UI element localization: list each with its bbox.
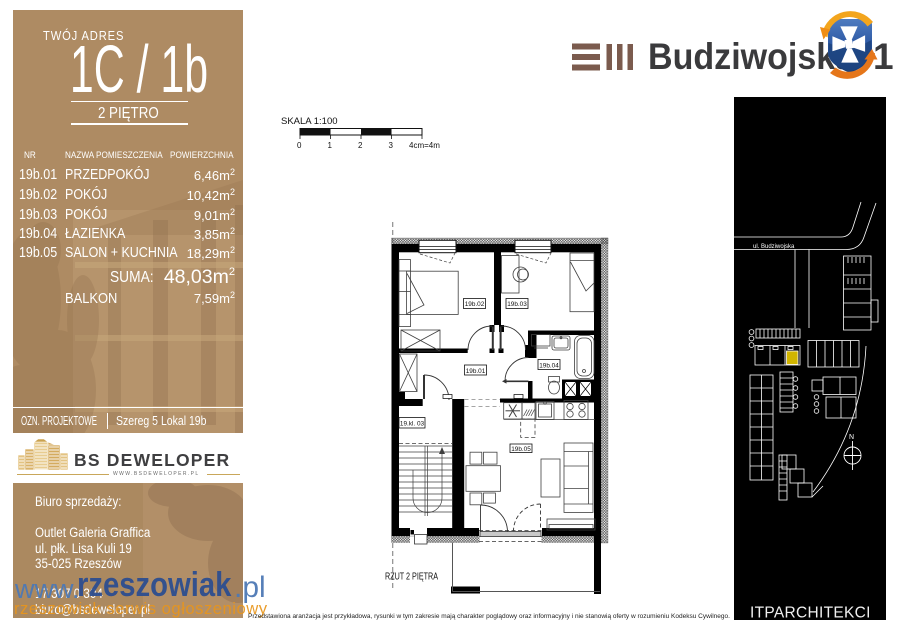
svg-text:19b.05: 19b.05 xyxy=(511,446,531,453)
svg-text:19b.01: 19b.01 xyxy=(466,368,486,375)
svg-text:SKALA 1:100: SKALA 1:100 xyxy=(281,116,338,127)
svg-text:19b.03: 19b.03 xyxy=(507,301,527,308)
svg-text:RZUT 2 PIĘTRA: RZUT 2 PIĘTRA xyxy=(385,572,438,583)
svg-text:0: 0 xyxy=(297,141,302,150)
svg-text:19b.04: 19b.04 xyxy=(539,362,559,369)
svg-text:2: 2 xyxy=(358,141,363,150)
svg-text:4cm=4m: 4cm=4m xyxy=(409,141,440,150)
svg-text:19b.02: 19b.02 xyxy=(465,301,485,308)
svg-text:3: 3 xyxy=(389,141,394,150)
svg-text:19.kl. 03: 19.kl. 03 xyxy=(400,421,425,428)
svg-text:N: N xyxy=(849,434,854,441)
svg-text:ul. Budziwojska: ul. Budziwojska xyxy=(753,244,795,250)
svg-text:1: 1 xyxy=(328,141,333,150)
svg-text:ITPARCHITEKCI: ITPARCHITEKCI xyxy=(750,605,871,621)
